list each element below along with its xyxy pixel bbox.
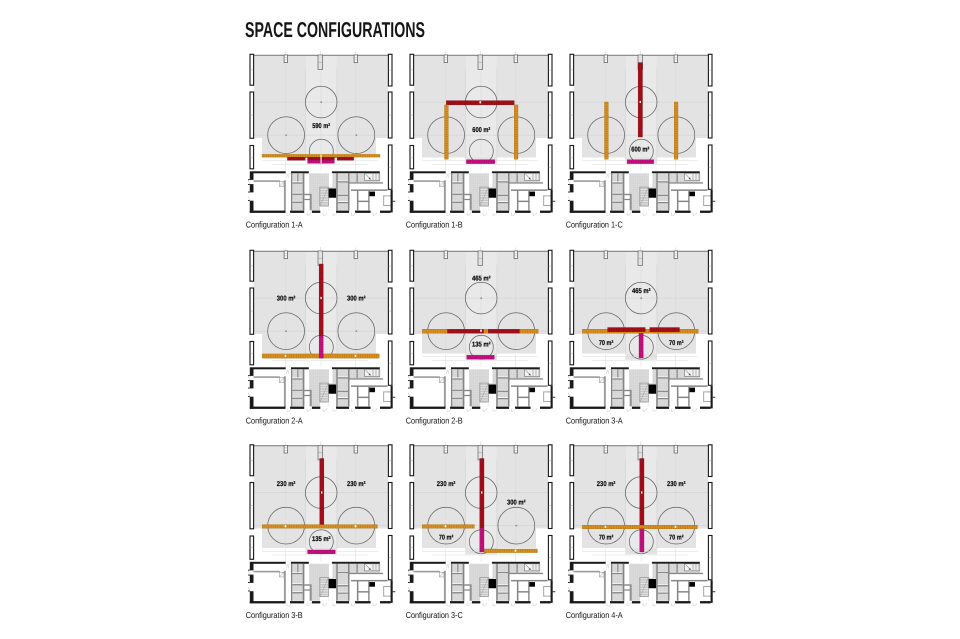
svg-text:230 m²: 230 m² <box>597 481 616 488</box>
svg-text:230 m²: 230 m² <box>667 481 686 488</box>
svg-text:Configuration 1-A: Configuration 1-A <box>246 220 303 230</box>
svg-text:Configuration 1-C: Configuration 1-C <box>566 220 623 230</box>
svg-text:135 m²: 135 m² <box>472 342 491 349</box>
svg-text:300 m²: 300 m² <box>507 499 526 506</box>
svg-text:70 m²: 70 m² <box>439 535 454 542</box>
svg-text:70 m²: 70 m² <box>669 535 684 542</box>
svg-text:70 m²: 70 m² <box>669 340 684 347</box>
svg-text:465 m²: 465 m² <box>472 276 491 283</box>
svg-text:600 m²: 600 m² <box>472 127 491 134</box>
svg-text:70 m²: 70 m² <box>599 340 614 347</box>
svg-text:465 m²: 465 m² <box>632 288 651 295</box>
svg-text:600 m²: 600 m² <box>631 146 650 153</box>
svg-text:300 m²: 300 m² <box>277 296 296 303</box>
svg-text:Configuration 3-A: Configuration 3-A <box>566 416 623 426</box>
svg-text:230 m²: 230 m² <box>437 481 456 488</box>
svg-text:Configuration 4-A: Configuration 4-A <box>566 610 623 620</box>
svg-text:300 m²: 300 m² <box>347 296 366 303</box>
svg-text:230 m²: 230 m² <box>277 481 296 488</box>
svg-text:70 m²: 70 m² <box>599 535 614 542</box>
svg-text:590 m²: 590 m² <box>312 123 331 130</box>
svg-text:135 m²: 135 m² <box>312 536 331 543</box>
svg-text:Configuration 2-B: Configuration 2-B <box>406 416 463 426</box>
svg-text:Configuration 2-A: Configuration 2-A <box>246 416 303 426</box>
svg-text:Configuration 1-B: Configuration 1-B <box>406 220 463 230</box>
svg-text:Configuration 3-C: Configuration 3-C <box>406 610 463 620</box>
svg-text:230 m²: 230 m² <box>347 481 366 488</box>
svg-text:SPACE CONFIGURATIONS: SPACE CONFIGURATIONS <box>245 18 425 42</box>
svg-text:Configuration 3-B: Configuration 3-B <box>246 610 303 620</box>
